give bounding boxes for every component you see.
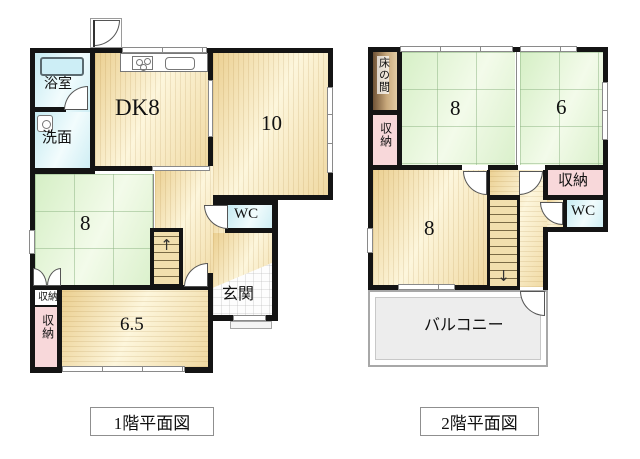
wall bbox=[373, 110, 398, 115]
floor1-title-box: 1階平面図 bbox=[90, 407, 214, 436]
wall bbox=[603, 47, 608, 82]
wall bbox=[545, 165, 608, 170]
floor2-closet-right-label: 収納 bbox=[558, 174, 588, 190]
wall bbox=[488, 165, 518, 170]
wall bbox=[517, 200, 520, 290]
floor2-top-window-left bbox=[400, 46, 513, 52]
floor2-stairs: ↓ bbox=[490, 200, 517, 286]
floor2-tatami8-label: 8 bbox=[450, 97, 461, 119]
floorplan-canvas: ↑ 浴室 洗面 DK8 10 8 WC 玄関 収納 収納 6.5 bbox=[0, 0, 640, 459]
wall bbox=[547, 195, 608, 200]
wall bbox=[543, 227, 548, 290]
wall bbox=[397, 52, 402, 165]
floor2-room8-label: 8 bbox=[424, 217, 435, 239]
wall bbox=[603, 140, 608, 232]
floor2-balcony-label: バルコニー bbox=[424, 318, 504, 335]
wall bbox=[563, 200, 567, 230]
floor2-right-window bbox=[602, 82, 608, 140]
floor1-title: 1階平面図 bbox=[114, 409, 191, 434]
wall bbox=[368, 165, 462, 170]
floor2-left-window bbox=[367, 228, 373, 253]
floor2-fusuma-line bbox=[516, 52, 517, 165]
floor2-tatami6-label: 6 bbox=[556, 96, 567, 118]
wall bbox=[513, 47, 520, 52]
floor2-title-box: 2階平面図 bbox=[420, 407, 539, 436]
floor2-closet-left-label: 収納 bbox=[379, 122, 392, 148]
floor2-wc-label: WC bbox=[571, 204, 595, 220]
floor2-top-window-right bbox=[520, 46, 577, 52]
wall bbox=[368, 285, 398, 290]
floor2-title: 2階平面図 bbox=[441, 409, 518, 434]
floor2-balcony-window bbox=[398, 284, 455, 290]
floor2-plan: ↓ 床の間 収納 8 6 収納 WC 8 バルコニー bbox=[0, 0, 640, 459]
wall bbox=[547, 227, 608, 232]
floor2-tokonoma-label: 床の間 bbox=[377, 56, 389, 94]
floor2-stairs-down-arrow: ↓ bbox=[490, 267, 517, 285]
wall bbox=[368, 47, 373, 228]
